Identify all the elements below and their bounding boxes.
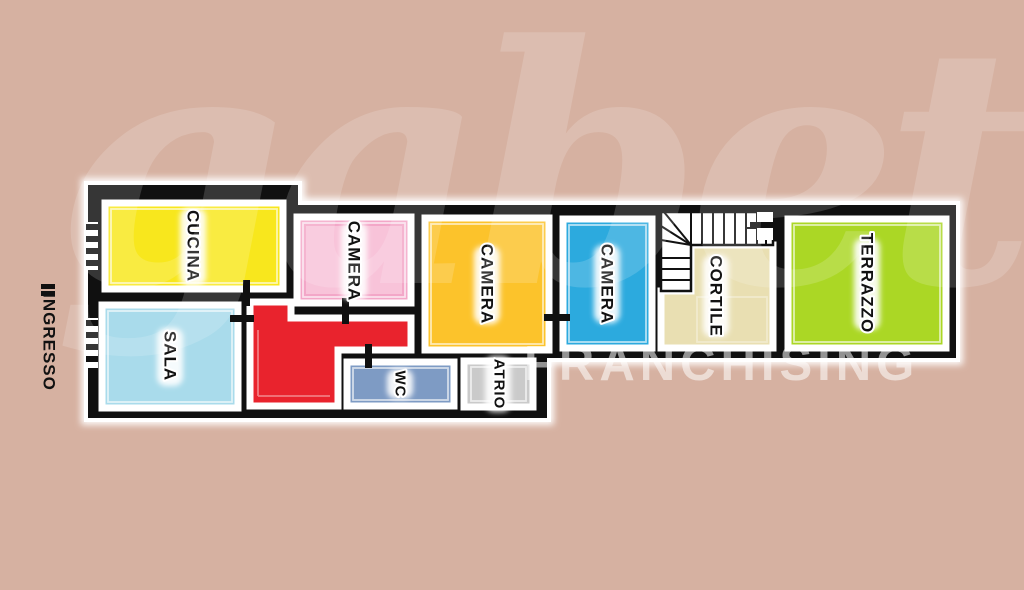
room-label-cucina: CUCINA [184, 210, 203, 282]
room-label-sala: SALA [161, 331, 180, 381]
room-label-camera-blue: CAMERA [598, 244, 617, 325]
entrance-label: INGRESSO [40, 293, 59, 391]
room-label-cortile: CORTILE [707, 255, 726, 337]
room-label-atrio: ATRIO [491, 359, 508, 410]
floor-plan-canvas: CUCINA SALA CAMERA CAMERA CAMERA CORTILE… [0, 0, 1024, 590]
room-label-terrazzo: TERRAZZO [858, 233, 877, 334]
room-label-camera-orange: CAMERA [478, 244, 497, 325]
room-label-camera-pink: CAMERA [345, 221, 364, 302]
floorplan-image: CUCINA SALA CAMERA CAMERA CAMERA CORTILE… [0, 0, 1024, 590]
room-label-wc: WC [392, 371, 409, 398]
